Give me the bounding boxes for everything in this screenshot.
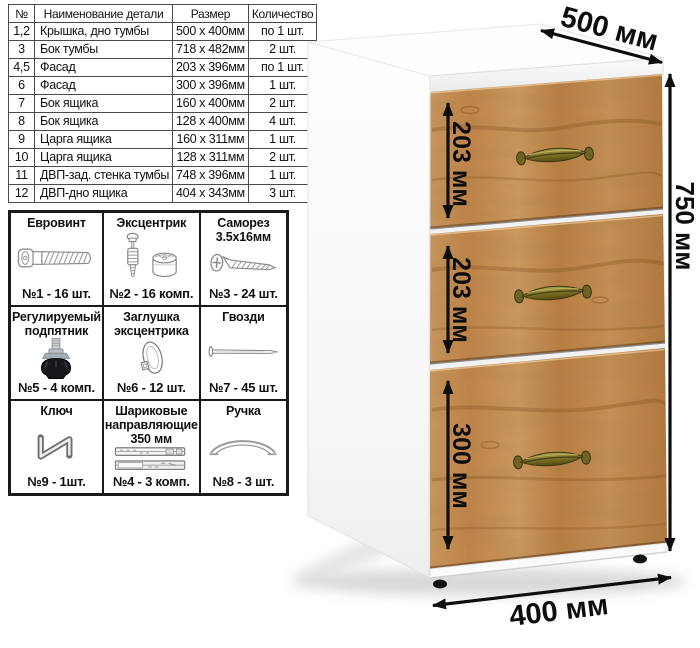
- dim-label-drawer-1: 203 мм: [447, 121, 475, 207]
- cabinet-foot: [433, 580, 447, 589]
- assembly-sheet: № Наименование детали Размер Количество …: [0, 0, 700, 648]
- dim-label-drawer-3: 300 мм: [447, 423, 475, 509]
- dim-label-height: 750 мм: [670, 181, 700, 270]
- cabinet-illustration: 500 мм 750 мм 400 мм 203 мм 203 мм 300 м…: [0, 0, 700, 648]
- dim-label-drawer-2: 203 мм: [447, 257, 475, 343]
- cabinet-side-panel: [308, 42, 430, 577]
- cabinet-foot: [633, 555, 647, 564]
